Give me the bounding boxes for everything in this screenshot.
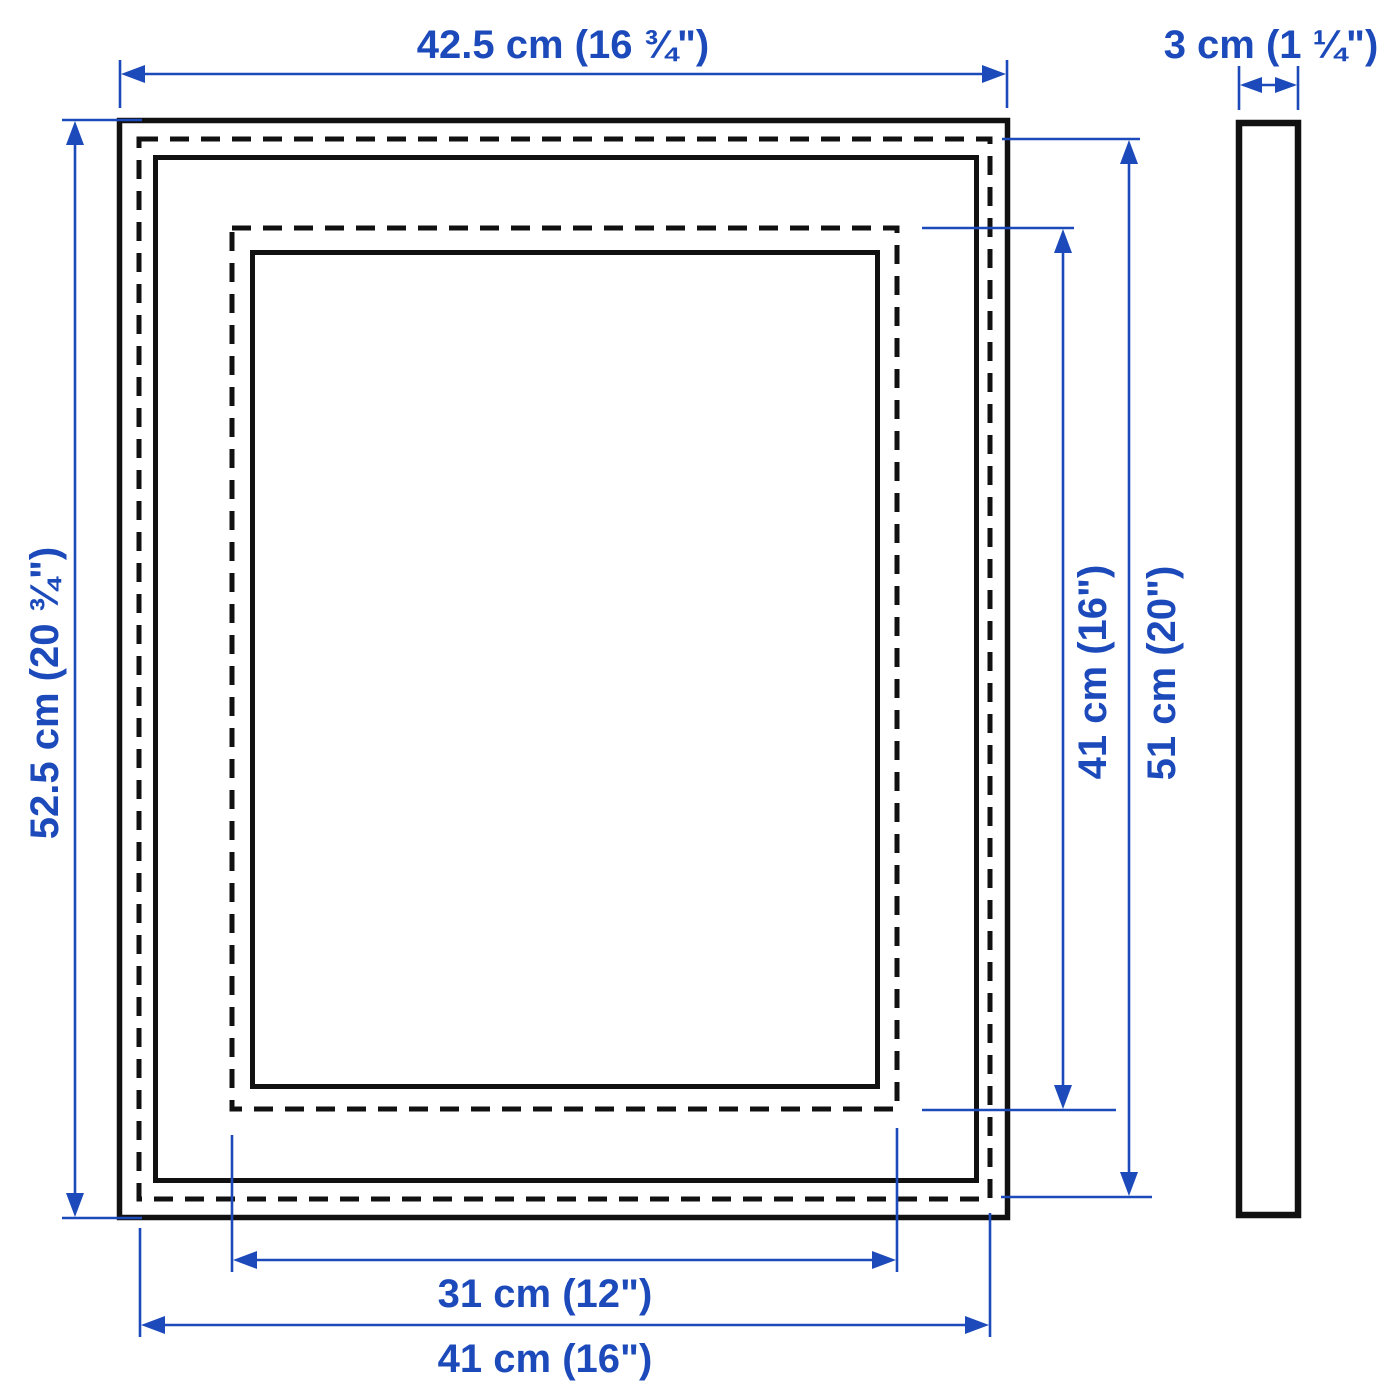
- arrow-down-icon: [66, 1193, 84, 1217]
- arrow-left-icon: [141, 1316, 165, 1334]
- dim-height-left-label: 52.5 cm (20 ¾"): [23, 547, 67, 839]
- side-profile: [1239, 123, 1298, 1215]
- dim-outer-height-right-label: 51 cm (20"): [1140, 566, 1184, 781]
- side-view: [1239, 123, 1298, 1215]
- arrow-up-icon: [1054, 229, 1072, 253]
- dim-depth-label: 3 cm (1 ¼"): [1164, 23, 1379, 67]
- frame-inner-edge: [156, 158, 977, 1181]
- mount-opening-dashed: [232, 228, 897, 1109]
- arrow-right-icon: [872, 1251, 896, 1269]
- arrow-up-icon: [1120, 140, 1138, 164]
- dim-width-top: 42.5 cm (16 ¾"): [120, 23, 1007, 108]
- dim-depth-top-right: 3 cm (1 ¼"): [1164, 23, 1379, 110]
- arrow-left-icon: [1240, 77, 1262, 93]
- back-plate-outline-dashed: [139, 139, 990, 1199]
- arrow-down-icon: [1054, 1085, 1072, 1109]
- dim-inner-width-bottom-label: 31 cm (12"): [438, 1272, 653, 1316]
- arrow-left-icon: [121, 65, 145, 83]
- dimension-diagram-svg: 42.5 cm (16 ¾") 52.5 cm (20 ¾") 41 cm (1…: [0, 0, 1400, 1400]
- arrow-right-icon: [982, 65, 1006, 83]
- dim-outer-width-bottom-label: 41 cm (16"): [438, 1337, 653, 1381]
- dim-inner-width-bottom: 31 cm (12"): [232, 1128, 897, 1316]
- dim-height-left: 52.5 cm (20 ¾"): [23, 120, 142, 1218]
- dim-inner-height-right-label: 41 cm (16"): [1071, 565, 1115, 780]
- front-view: [120, 121, 1008, 1218]
- dim-width-top-label: 42.5 cm (16 ¾"): [417, 23, 709, 67]
- arrow-up-icon: [66, 121, 84, 145]
- arrow-left-icon: [233, 1251, 257, 1269]
- dim-inner-height-right: 41 cm (16"): [922, 228, 1116, 1110]
- arrow-right-icon: [965, 1316, 989, 1334]
- picture-opening-edge: [253, 253, 878, 1087]
- arrow-down-icon: [1120, 1172, 1138, 1196]
- frame-dimension-diagram: 42.5 cm (16 ¾") 52.5 cm (20 ¾") 41 cm (1…: [0, 0, 1400, 1400]
- arrow-right-icon: [1275, 77, 1297, 93]
